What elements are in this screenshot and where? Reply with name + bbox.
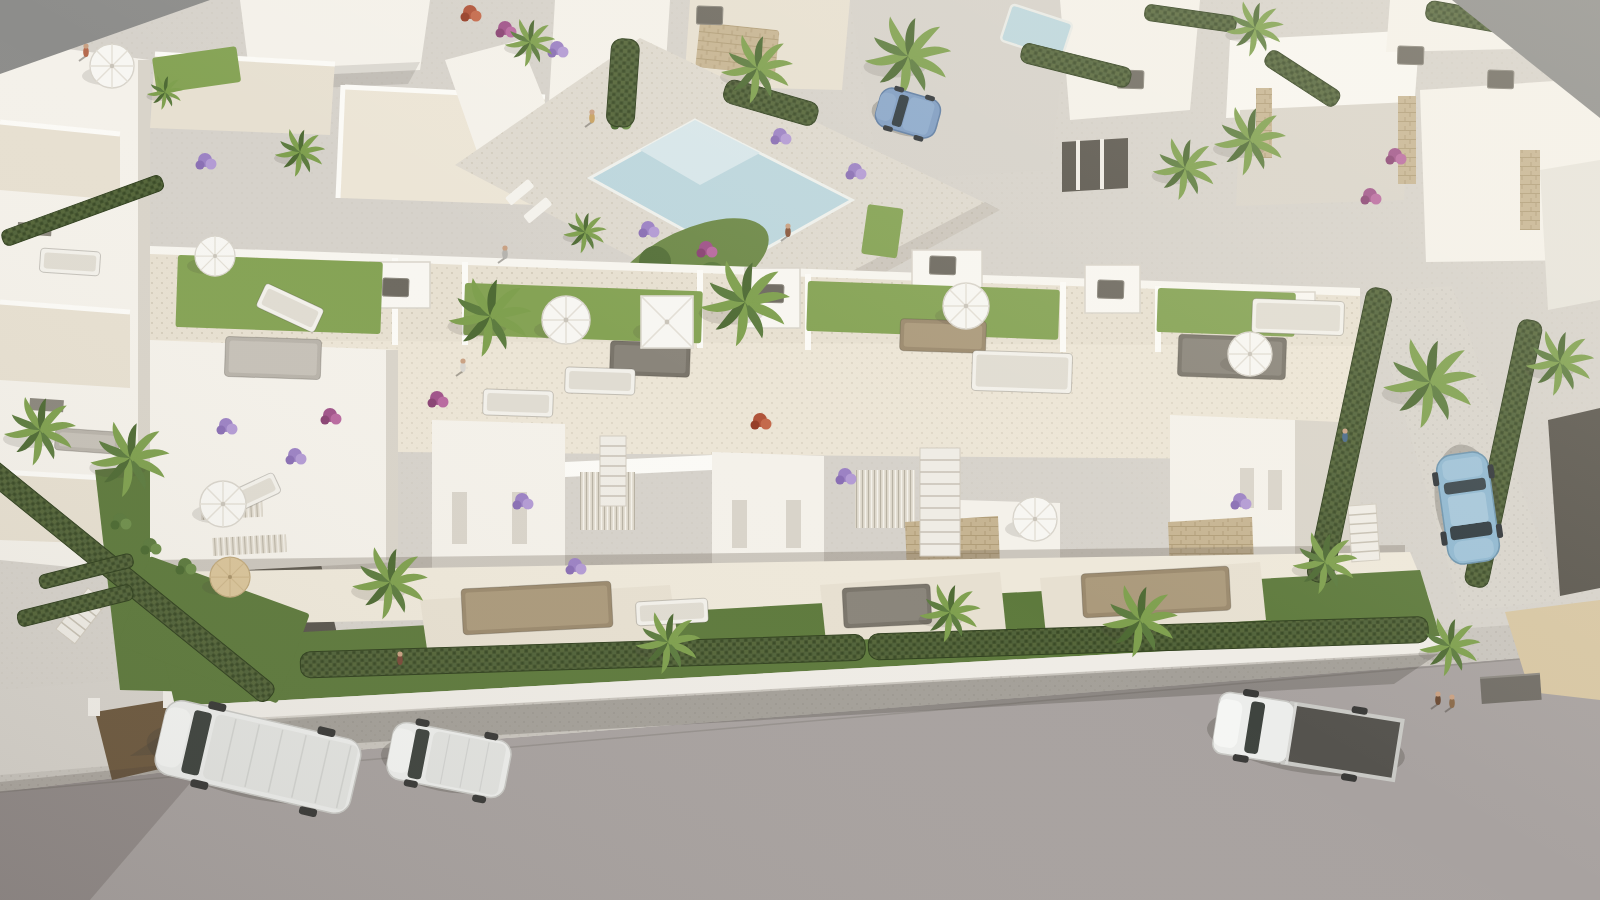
sunlight-overlay [0, 0, 1600, 900]
scene-canvas [0, 0, 1600, 900]
aerial-render-image [0, 0, 1600, 900]
